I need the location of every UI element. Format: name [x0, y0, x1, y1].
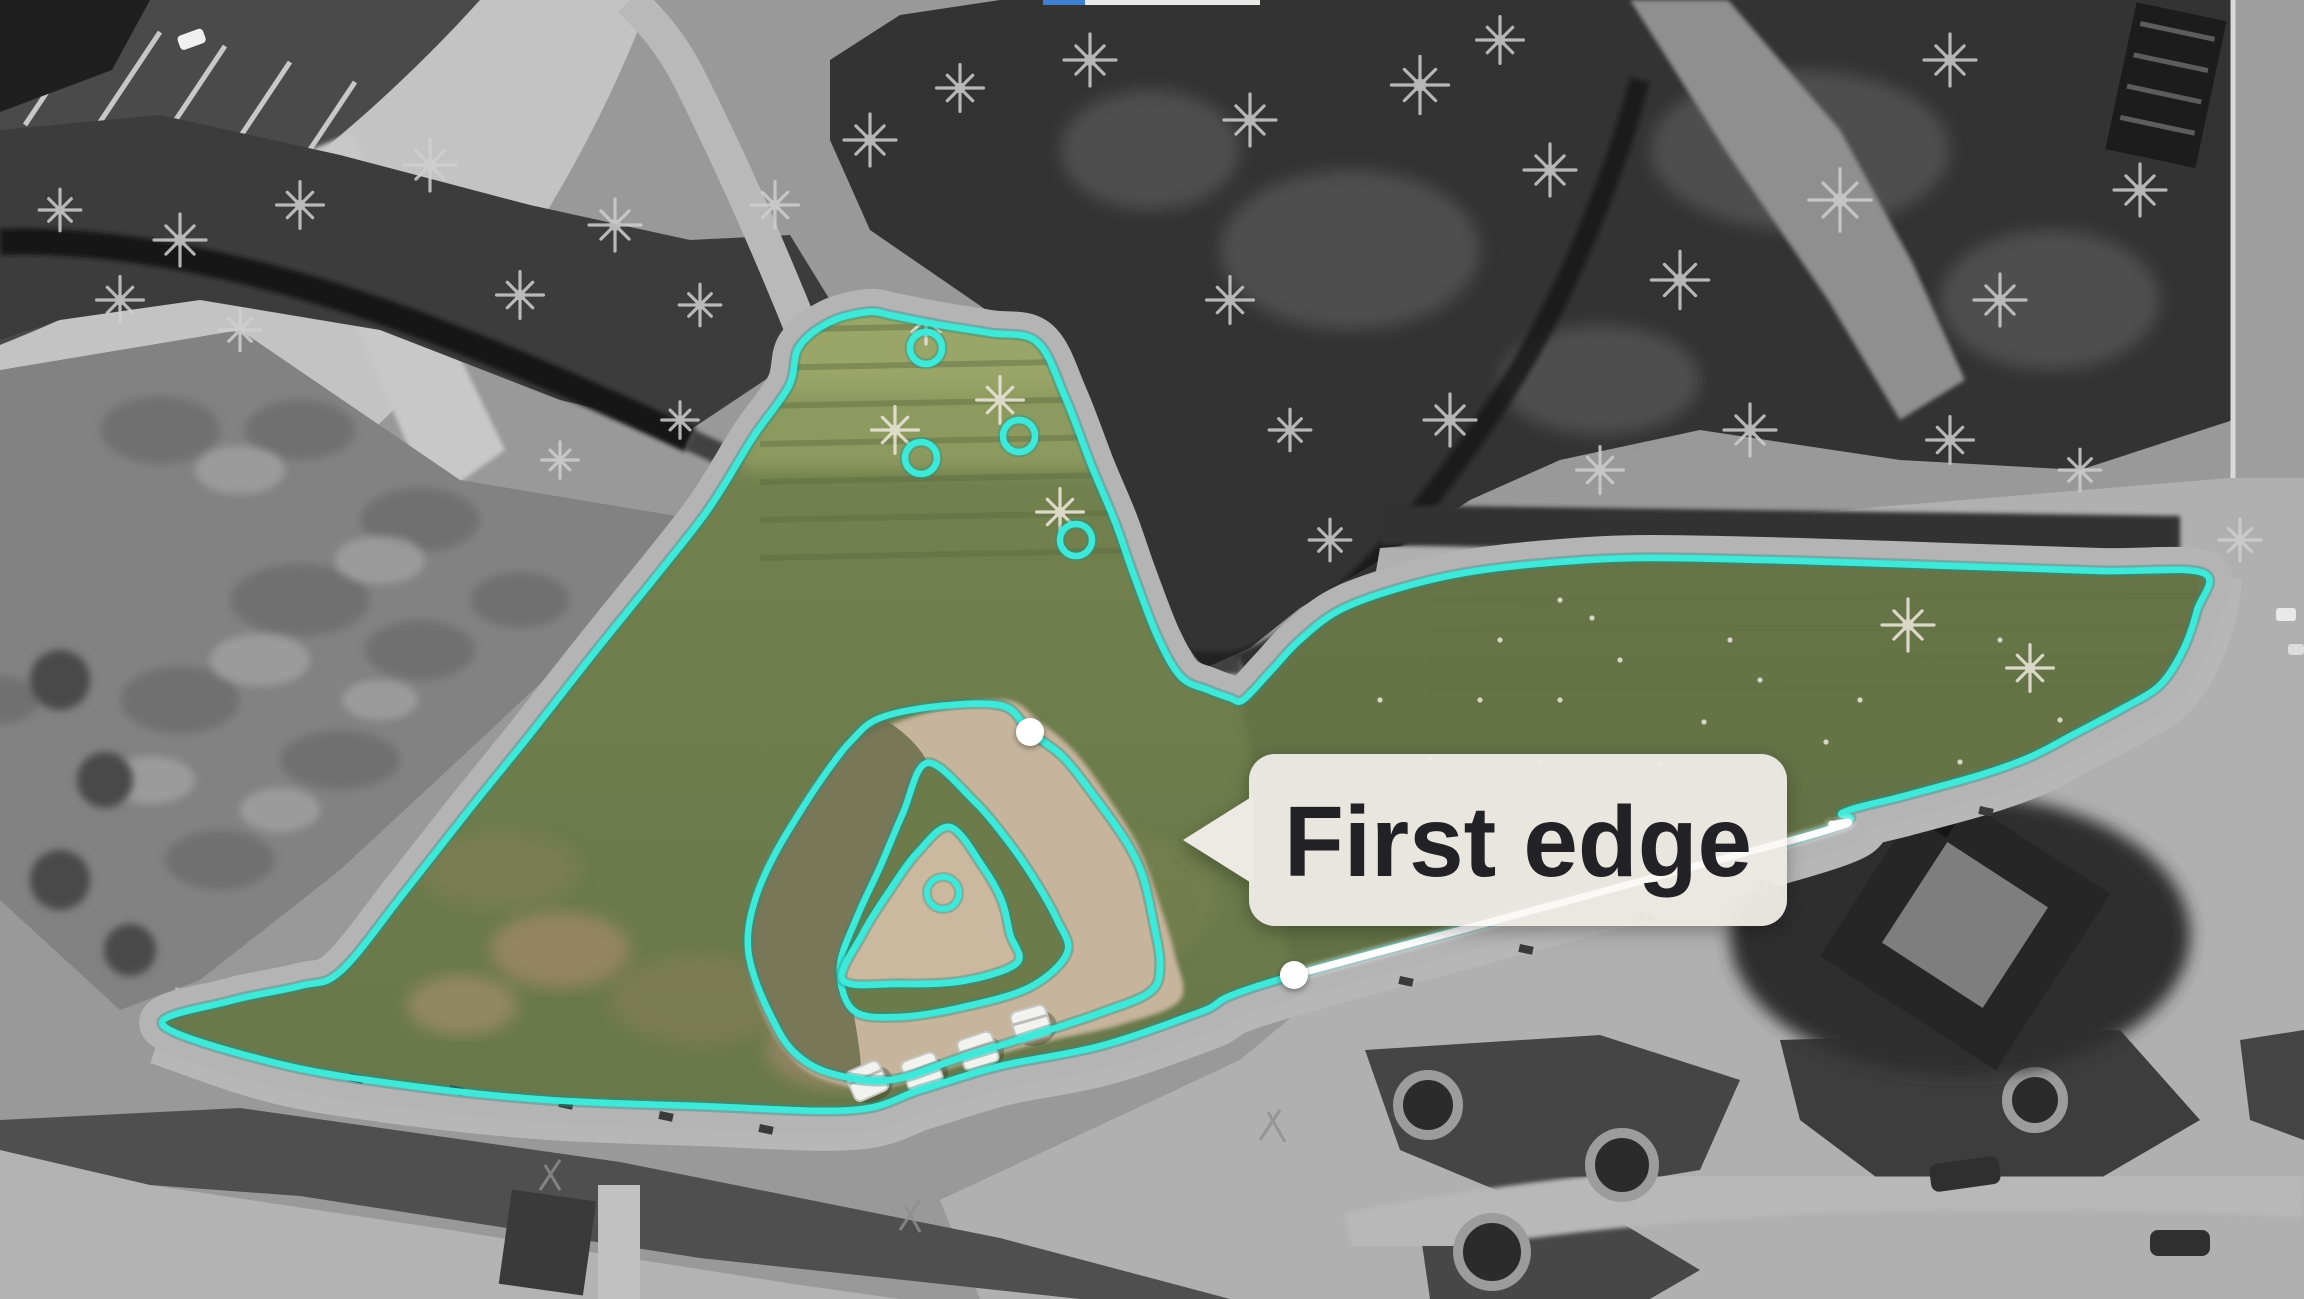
flower-speck	[1701, 719, 1706, 724]
flower-speck	[1957, 759, 1962, 764]
flower-speck	[1497, 637, 1502, 642]
flower-speck	[2057, 717, 2062, 722]
bench-2	[2150, 1230, 2210, 1256]
flower-speck	[1477, 697, 1482, 702]
flower-speck	[1757, 677, 1762, 682]
car-right-2	[2288, 644, 2304, 655]
flower-speck	[1557, 697, 1562, 702]
planter-square	[499, 1190, 596, 1296]
aerial-map-view: First edge	[0, 0, 2304, 1299]
video-progress-fragment[interactable]	[1043, 0, 1260, 5]
callout-label: First edge	[1284, 786, 1752, 898]
dry-patch	[490, 912, 630, 988]
flower-speck	[1377, 697, 1382, 702]
flower-speck	[1997, 637, 2002, 642]
car-right-1	[2276, 608, 2296, 621]
flower-speck	[1589, 615, 1594, 620]
path-stub	[598, 1185, 640, 1299]
flower-speck	[1857, 697, 1862, 702]
flower-speck	[1557, 597, 1562, 602]
map-canvas[interactable]: First edge	[0, 0, 2304, 1299]
flower-speck	[1727, 637, 1732, 642]
road-right	[2233, 0, 2304, 480]
dry-patch	[407, 975, 517, 1035]
flower-speck	[1617, 657, 1622, 662]
vertex-handle-dot[interactable]	[1016, 718, 1044, 746]
flower-speck	[1823, 739, 1828, 744]
progress-remaining	[1085, 0, 1260, 5]
vertex-handle-dot[interactable]	[1280, 961, 1308, 989]
progress-played	[1043, 0, 1085, 5]
